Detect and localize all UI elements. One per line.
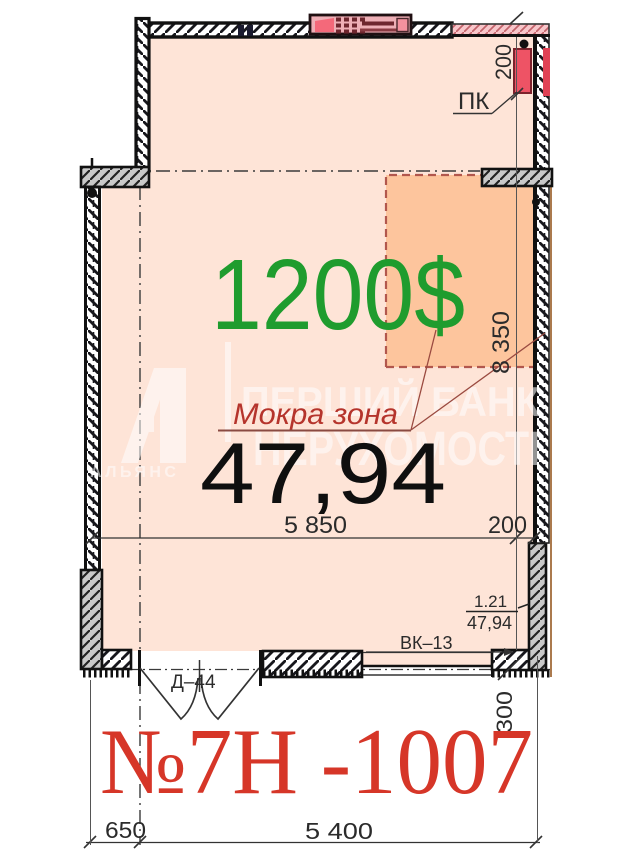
svg-text:ВК–13: ВК–13	[400, 633, 453, 653]
svg-text:АЛЬЯНС: АЛЬЯНС	[90, 464, 179, 481]
svg-text:5 400: 5 400	[305, 818, 373, 844]
svg-text:200: 200	[488, 512, 527, 539]
svg-text:5 850: 5 850	[284, 512, 347, 539]
svg-text:47,94: 47,94	[200, 426, 446, 522]
svg-text:1.21: 1.21	[474, 592, 507, 611]
svg-text:1200$: 1200$	[211, 239, 465, 351]
svg-text:8 350: 8 350	[488, 311, 515, 374]
svg-text:№7Н -1007: №7Н -1007	[100, 710, 533, 814]
svg-text:47,94: 47,94	[467, 613, 512, 633]
svg-text:200: 200	[491, 44, 516, 80]
svg-text:Д–44: Д–44	[171, 672, 216, 693]
svg-text:ПК: ПК	[458, 88, 489, 115]
svg-text:650: 650	[105, 817, 146, 843]
